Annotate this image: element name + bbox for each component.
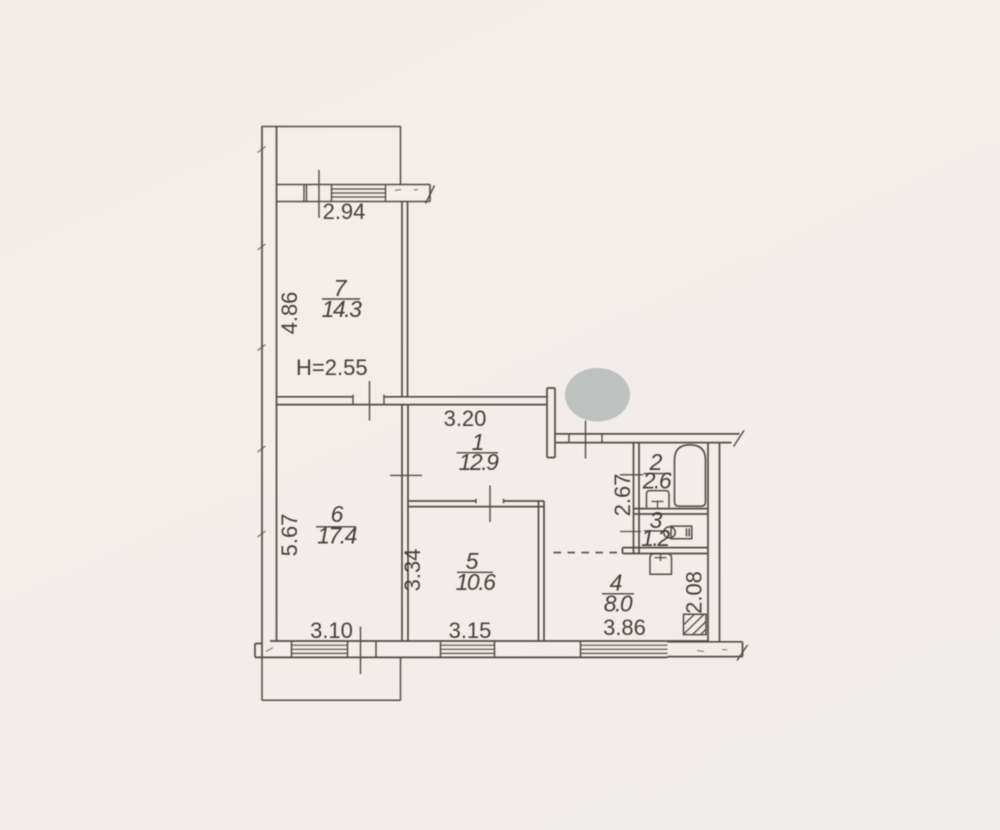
svg-text:3.15: 3.15 <box>449 618 492 643</box>
svg-text:2.6: 2.6 <box>642 468 672 494</box>
svg-text:2.94: 2.94 <box>323 199 366 224</box>
svg-text:10.6: 10.6 <box>456 569 496 595</box>
svg-text:8.0: 8.0 <box>604 591 633 617</box>
svg-text:17.4: 17.4 <box>317 523 356 549</box>
svg-text:5.67: 5.67 <box>277 514 302 557</box>
svg-text:1.2: 1.2 <box>641 525 670 551</box>
svg-text:3.34: 3.34 <box>400 549 425 592</box>
svg-text:2.67: 2.67 <box>610 474 635 517</box>
svg-text:12.9: 12.9 <box>459 449 499 475</box>
svg-text:4.86: 4.86 <box>277 292 302 335</box>
svg-text:3.20: 3.20 <box>444 406 487 431</box>
svg-text:3.86: 3.86 <box>603 615 646 640</box>
svg-text:3.10: 3.10 <box>310 618 353 643</box>
svg-text:H=2.55: H=2.55 <box>296 355 368 380</box>
svg-text:14.3: 14.3 <box>322 296 362 322</box>
svg-text:2.08: 2.08 <box>682 571 707 614</box>
